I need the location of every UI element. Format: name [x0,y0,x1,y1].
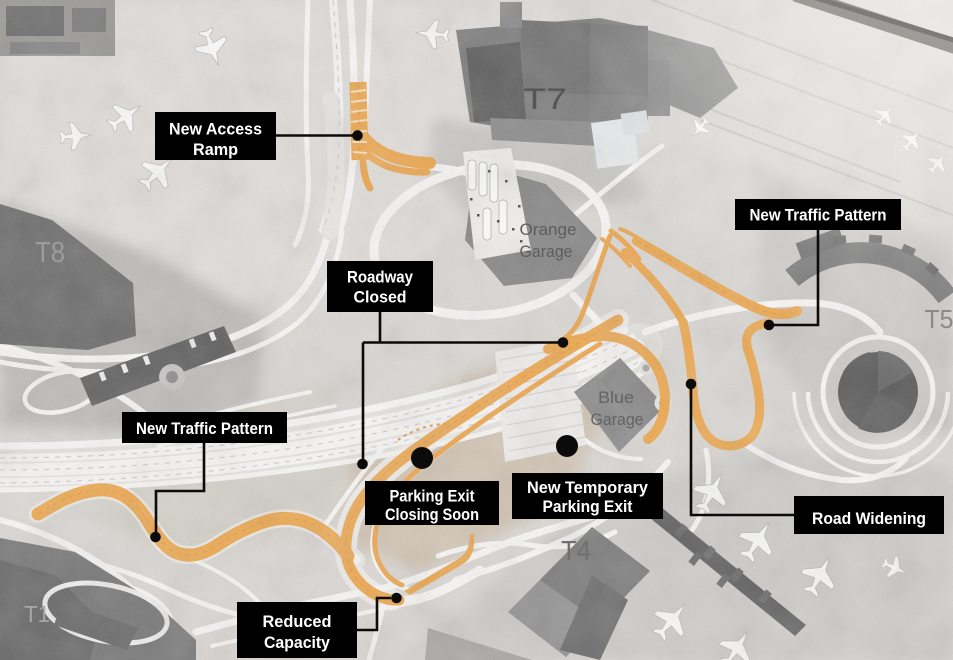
svg-text:Parking Exit: Parking Exit [390,488,475,506]
svg-text:Orange: Orange [520,220,577,239]
svg-text:T5: T5 [925,304,953,334]
svg-text:Closed: Closed [354,288,407,307]
svg-text:New Temporary: New Temporary [527,479,649,497]
svg-text:Garage: Garage [520,242,573,261]
svg-text:Parking Exit: Parking Exit [543,498,633,516]
svg-text:T8: T8 [35,237,65,269]
svg-text:Road Widening: Road Widening [812,509,926,528]
svg-text:T1: T1 [24,601,50,627]
svg-text:Closing Soon: Closing Soon [385,506,479,524]
svg-text:New Traffic Pattern: New Traffic Pattern [750,206,887,225]
svg-text:T7: T7 [523,83,567,116]
svg-text:Capacity: Capacity [264,633,330,652]
svg-text:Roadway: Roadway [347,268,413,287]
svg-text:Reduced: Reduced [263,612,332,631]
svg-text:T4: T4 [561,535,591,566]
svg-text:Garage: Garage [591,410,644,429]
svg-text:Ramp: Ramp [193,140,238,159]
svg-text:New Access: New Access [169,120,262,139]
svg-text:New Traffic Pattern: New Traffic Pattern [136,419,273,438]
svg-text:Blue: Blue [598,388,634,407]
